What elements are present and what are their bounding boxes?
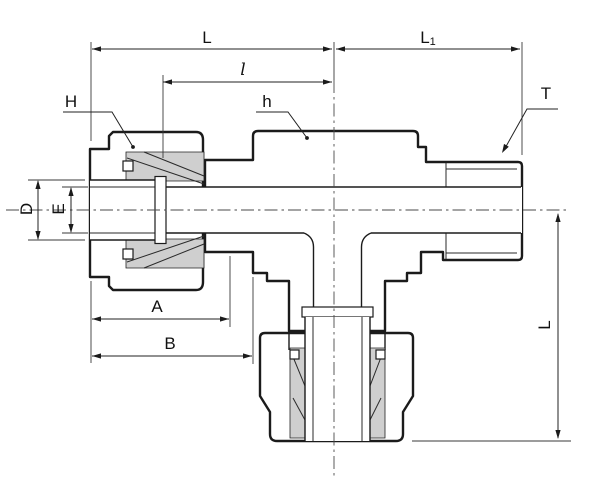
dim-label-A: A [151,297,163,316]
callout-H: H [63,92,135,149]
callout-label-T: T [541,84,551,103]
dim-label-B: B [164,334,175,353]
callout-T: T [502,84,558,153]
dim-label-E: E [49,203,68,214]
branch-cavity-left [290,348,305,438]
leader-dot-h [305,136,309,140]
fitting-cross-section-drawing: L l L1 D E [0,0,603,485]
dim-B: B [92,334,252,359]
dim-label-L1: L1 [420,28,436,48]
callout-label-h: h [262,92,271,111]
dim-E: E [49,187,74,233]
dim-A: A [92,297,229,322]
dim-L1: L1 [336,28,520,52]
callout-label-H: H [65,92,77,111]
dim-label-l: l [240,60,245,80]
leader-dot-H [131,145,135,149]
branch-thread-gap-left [290,350,299,359]
dim-label-L-top: L [202,28,211,47]
branch-hole-right [362,233,372,307]
dim-label-L-branch: L [535,320,554,329]
branch-hole [314,233,362,308]
dim-L-branch: L [535,213,561,439]
callout-h: h [256,92,309,140]
left-tube-zone [90,180,156,240]
dim-L-top: L [92,28,332,52]
left-nut-thread-gap-bottom [123,249,133,259]
left-nut-thread-gap-top [123,161,133,171]
branch-thread-gap-right [376,350,385,359]
branch-hole-left [304,233,314,307]
leader-arrow-T [502,144,509,153]
technical-drawing-page: L l L1 D E [0,0,603,485]
branch-cavity-right [370,348,385,438]
dim-label-D: D [17,203,36,215]
branch-tube-zone [305,317,370,441]
dim-l: l [163,60,332,85]
branch-port [260,233,413,441]
branch-tube-sleeve [302,307,373,317]
